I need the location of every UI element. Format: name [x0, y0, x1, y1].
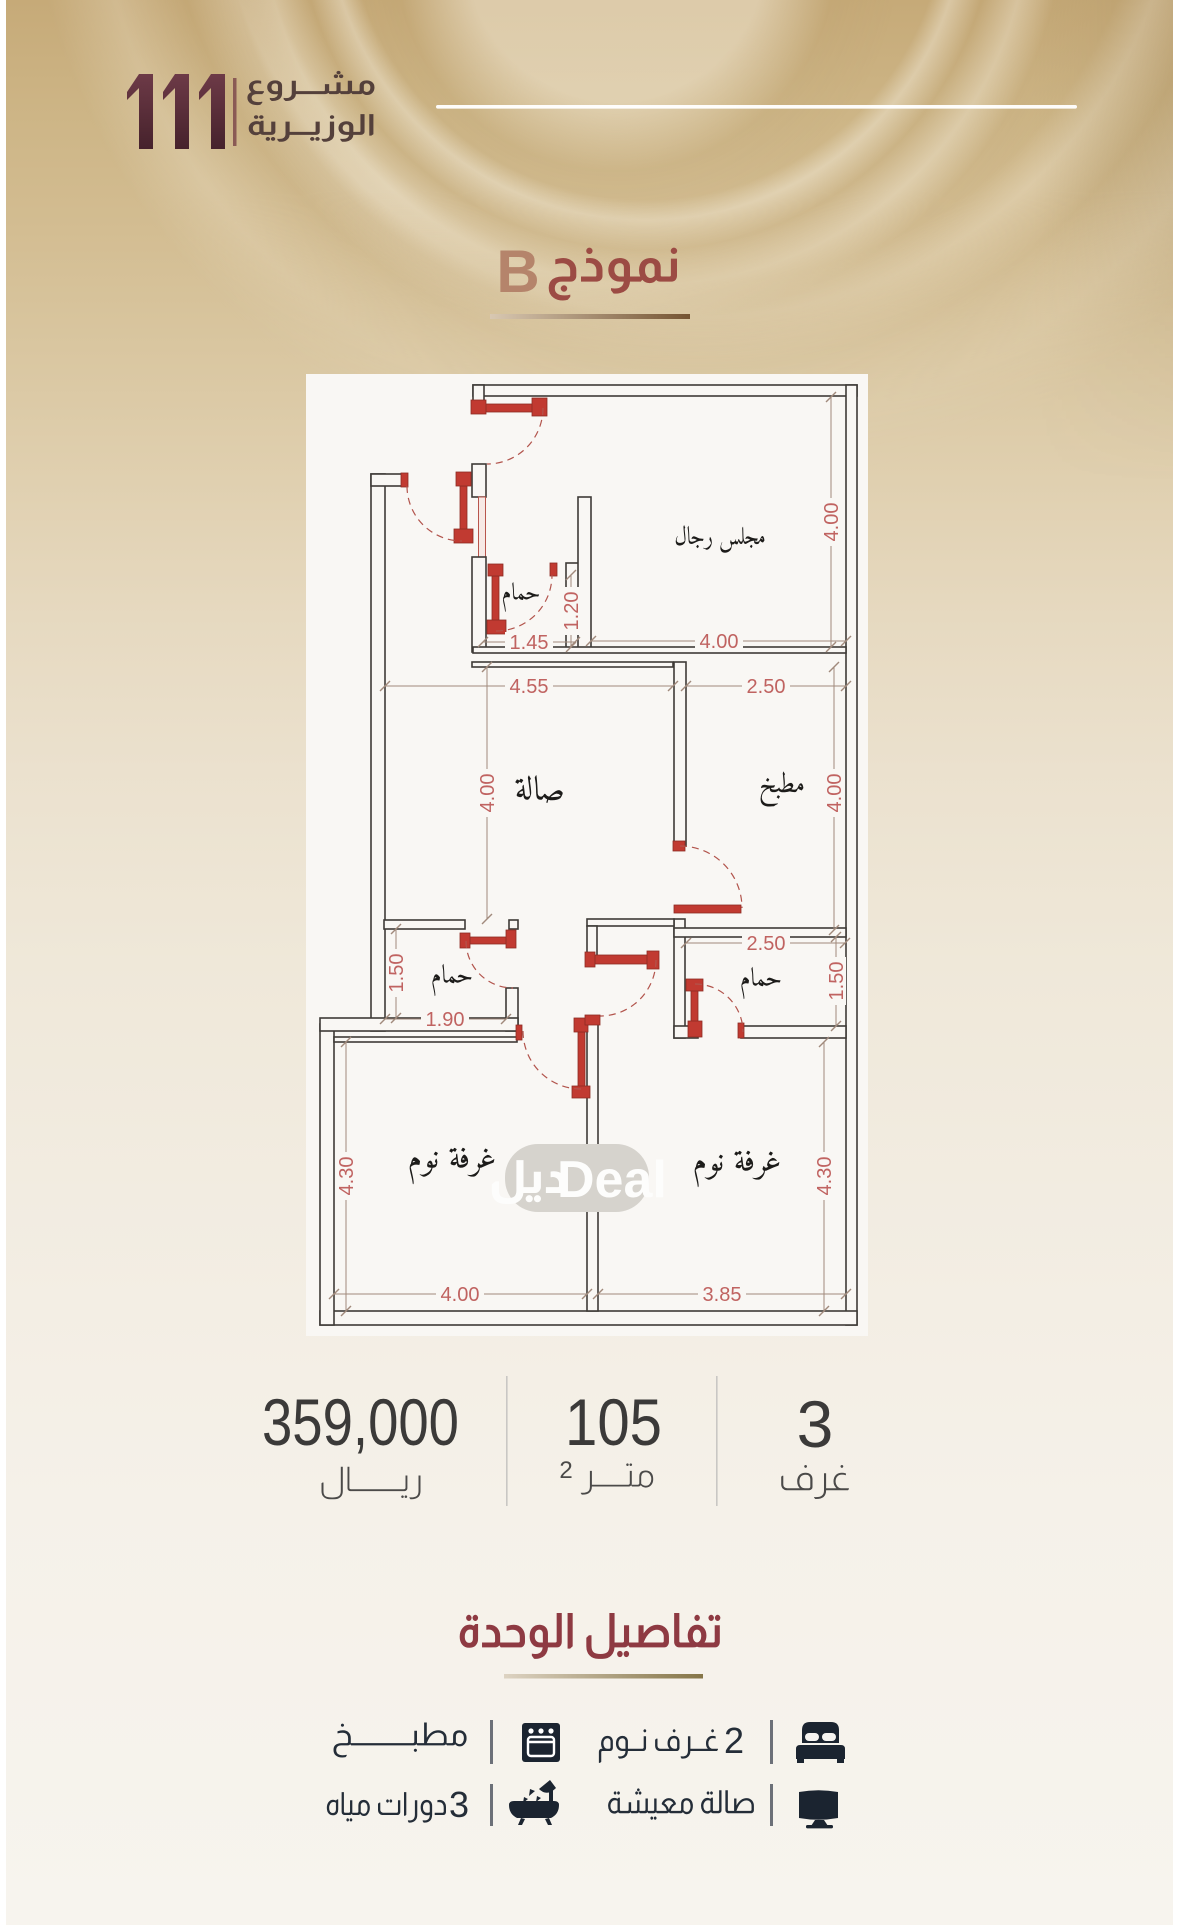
svg-text:3.85: 3.85 — [703, 1284, 742, 1306]
svg-text:4.00: 4.00 — [477, 774, 499, 813]
svg-text:1.45: 1.45 — [510, 632, 549, 654]
svg-text:359,000: 359,000 — [262, 1385, 459, 1459]
svg-text:4.00: 4.00 — [700, 631, 739, 653]
svg-text:3: 3 — [449, 1784, 469, 1825]
svg-text:4.00: 4.00 — [441, 1284, 480, 1306]
svg-text:Deal: Deal — [557, 1151, 667, 1209]
svg-text:1.20: 1.20 — [561, 592, 583, 631]
svg-text:3: 3 — [797, 1387, 834, 1461]
svg-text:1.50: 1.50 — [386, 954, 408, 993]
svg-text:1.90: 1.90 — [426, 1009, 465, 1031]
svg-text:2: 2 — [724, 1720, 744, 1761]
svg-text:4.00: 4.00 — [824, 774, 846, 813]
svg-text:2: 2 — [559, 1457, 572, 1484]
svg-text:B: B — [496, 238, 539, 305]
svg-text:2.50: 2.50 — [747, 933, 786, 955]
svg-text:2.50: 2.50 — [747, 676, 786, 698]
svg-text:4.30: 4.30 — [814, 1157, 836, 1196]
svg-text:1.50: 1.50 — [826, 962, 848, 1001]
svg-text:4.00: 4.00 — [821, 503, 843, 542]
svg-text:4.55: 4.55 — [510, 676, 549, 698]
svg-text:4.30: 4.30 — [336, 1157, 358, 1196]
svg-text:105: 105 — [565, 1385, 662, 1459]
